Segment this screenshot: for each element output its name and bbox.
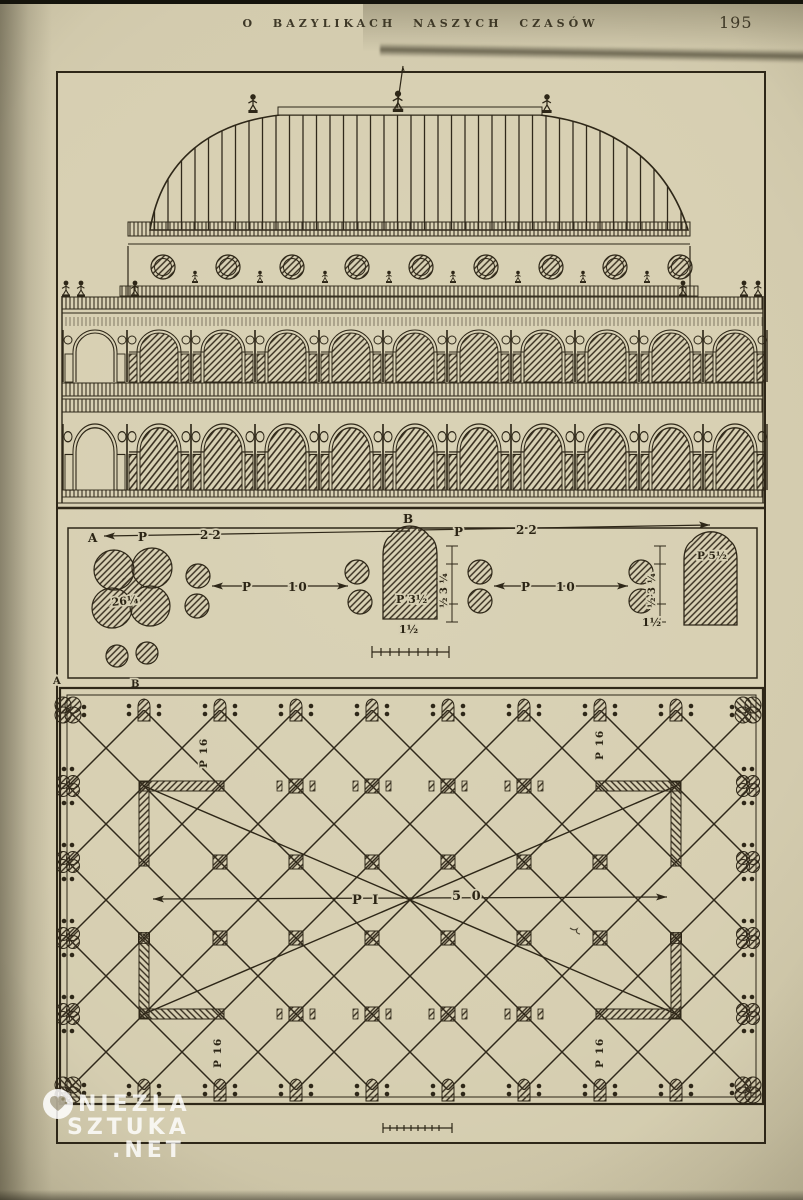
dim-below-right: 1½ xyxy=(642,616,661,629)
dim-bay: P 16 xyxy=(594,1038,606,1068)
photo-edge-top xyxy=(0,0,803,4)
right-end-pier xyxy=(684,532,737,625)
dim-hall-value: 5 0 xyxy=(452,889,484,904)
book-page-photo: O BAZYLIKACH NASZYCH CZASÓW 195 xyxy=(0,0,803,1200)
dim-hall-prefix: P I xyxy=(352,893,381,908)
dome-walkway xyxy=(278,107,542,115)
quatrefoil-pier xyxy=(92,548,172,628)
book-gutter-shadow xyxy=(0,0,52,1200)
dim-ticks-right: ½ 3 ¼ xyxy=(647,573,658,608)
dim-span-left-prefix: P xyxy=(138,530,147,544)
photo-shadow-bottom xyxy=(0,1190,803,1200)
dim-pier-center: P 3½ xyxy=(396,593,427,606)
dim-span-left-value: 22 xyxy=(200,528,225,542)
lattice-grid xyxy=(68,710,748,1090)
dim-below-center: 1½ xyxy=(399,623,418,636)
dim-bay: P 16 xyxy=(594,730,606,760)
attic-oculi xyxy=(151,255,692,279)
lower-arcade xyxy=(63,424,767,490)
dim-ticks-left: ½ 3 ¼ xyxy=(439,573,450,608)
dim-colgap-left-prefix: P xyxy=(242,580,251,594)
section-label-b-top: B xyxy=(403,512,413,526)
dim-bay: P 16 xyxy=(212,1038,224,1068)
section-label-a-top: A xyxy=(87,531,98,545)
dim-bay: P 16 xyxy=(198,738,210,768)
ground-plan: P I 5 0 P 16 P 16 P 16 P 16 xyxy=(55,688,763,1133)
dim-span-right-prefix: P xyxy=(454,525,463,539)
dim-span-right-value: 22 xyxy=(516,523,541,537)
engraving-plate: B A P 22 P 22 26¼ xyxy=(0,0,803,1200)
section-label-a-bottom: A xyxy=(52,676,61,687)
dim-colgap-right-value: 10 xyxy=(556,580,577,594)
dim-colgap-left-value: 10 xyxy=(288,580,309,594)
dim-pier-right: P 5½ xyxy=(697,550,727,562)
upper-arcade xyxy=(63,330,767,382)
dim-colgap-right-prefix: P xyxy=(521,580,530,594)
